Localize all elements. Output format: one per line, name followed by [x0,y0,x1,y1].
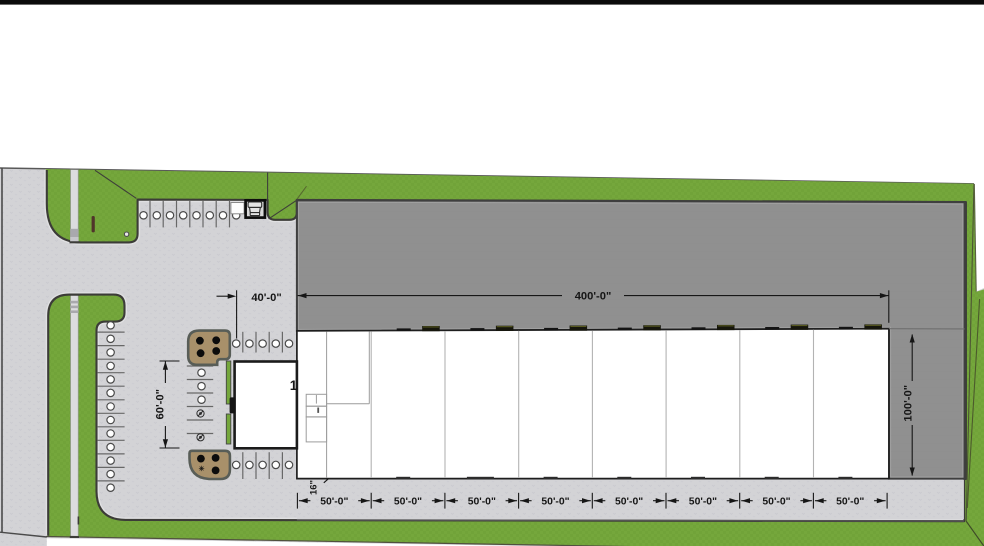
svg-text:✳: ✳ [199,465,205,473]
svg-text:50'-0": 50'-0" [320,497,348,508]
svg-text:50'-0": 50'-0" [615,497,643,508]
svg-text:60'-0": 60'-0" [154,389,166,419]
svg-text:50'-0": 50'-0" [689,497,717,508]
svg-text:50'-0": 50'-0" [468,497,496,508]
svg-text:40'-0": 40'-0" [251,292,281,304]
svg-text:16": 16" [309,480,320,495]
svg-text:100'-0": 100'-0" [902,385,914,422]
svg-text:50'-0": 50'-0" [394,497,422,508]
svg-text:1: 1 [290,378,298,393]
svg-text:50'-0": 50'-0" [541,497,569,508]
svg-text:50'-0": 50'-0" [762,497,790,508]
svg-text:400'-0": 400'-0" [575,290,612,302]
svg-text:50'-0": 50'-0" [836,497,864,508]
